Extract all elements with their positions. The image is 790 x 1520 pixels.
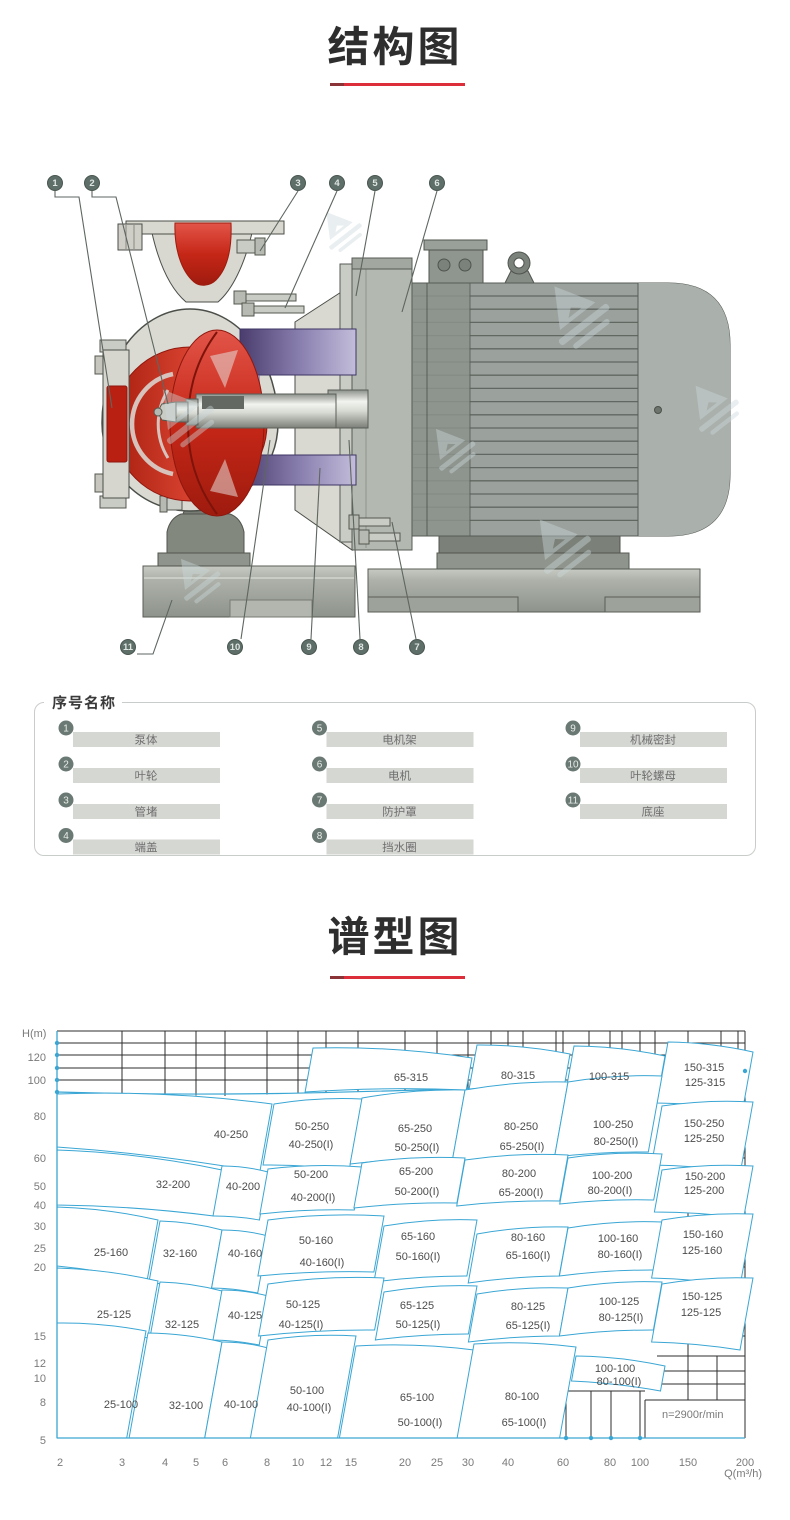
svg-text:50-250(I): 50-250(I) (395, 1142, 440, 1154)
svg-text:65-125: 65-125 (400, 1300, 434, 1312)
svg-text:80: 80 (604, 1457, 616, 1469)
svg-text:3: 3 (63, 795, 69, 806)
svg-text:40-125(I): 40-125(I) (279, 1319, 324, 1331)
svg-text:100-250: 100-250 (593, 1119, 633, 1131)
svg-text:100-160: 100-160 (598, 1233, 638, 1245)
svg-text:50: 50 (34, 1181, 46, 1193)
svg-text:9: 9 (570, 723, 576, 734)
svg-text:80: 80 (34, 1111, 46, 1123)
svg-text:12: 12 (320, 1457, 332, 1469)
svg-text:5: 5 (40, 1435, 46, 1447)
svg-text:25: 25 (431, 1457, 443, 1469)
svg-text:20: 20 (34, 1262, 46, 1274)
svg-text:150-315: 150-315 (684, 1062, 724, 1074)
svg-text:2: 2 (57, 1457, 63, 1469)
svg-text:40-250: 40-250 (214, 1129, 248, 1141)
svg-text:65-160: 65-160 (401, 1231, 435, 1243)
svg-text:50-100: 50-100 (290, 1385, 324, 1397)
svg-text:80-125(I): 80-125(I) (599, 1312, 644, 1324)
svg-text:65-200(I): 65-200(I) (499, 1187, 544, 1199)
svg-text:125-125: 125-125 (681, 1307, 721, 1319)
svg-text:30: 30 (462, 1457, 474, 1469)
svg-text:11: 11 (568, 795, 579, 806)
svg-text:7: 7 (317, 795, 323, 806)
svg-text:8: 8 (40, 1397, 46, 1409)
svg-text:65-250(I): 65-250(I) (500, 1141, 545, 1153)
svg-text:120: 120 (28, 1052, 46, 1064)
svg-text:10: 10 (34, 1373, 46, 1385)
svg-text:80-125: 80-125 (511, 1301, 545, 1313)
svg-text:5: 5 (317, 723, 323, 734)
svg-text:H(m): H(m) (22, 1028, 46, 1040)
svg-text:9: 9 (306, 642, 311, 653)
svg-text:4: 4 (334, 178, 340, 189)
svg-text:10: 10 (292, 1457, 304, 1469)
svg-text:65-200: 65-200 (399, 1166, 433, 1178)
svg-text:150: 150 (679, 1457, 697, 1469)
svg-text:50-250: 50-250 (295, 1121, 329, 1133)
svg-text:10: 10 (567, 759, 579, 770)
svg-text:1: 1 (63, 723, 69, 734)
svg-text:32-160: 32-160 (163, 1248, 197, 1260)
svg-text:60: 60 (34, 1153, 46, 1165)
svg-text:4: 4 (63, 831, 69, 842)
svg-text:150-125: 150-125 (682, 1291, 722, 1303)
svg-text:50-200: 50-200 (294, 1169, 328, 1181)
svg-text:40-160(I): 40-160(I) (300, 1257, 345, 1269)
svg-text:100-200: 100-200 (592, 1170, 632, 1182)
svg-text:80-100: 80-100 (505, 1391, 539, 1403)
svg-text:25-160: 25-160 (94, 1247, 128, 1259)
svg-text:65-100(I): 65-100(I) (502, 1417, 547, 1429)
svg-text:25-125: 25-125 (97, 1309, 131, 1321)
svg-text:125-250: 125-250 (684, 1133, 724, 1145)
svg-text:1: 1 (52, 178, 58, 189)
svg-text:80-250(I): 80-250(I) (594, 1136, 639, 1148)
svg-text:50-160: 50-160 (299, 1235, 333, 1247)
svg-text:80-200(I): 80-200(I) (588, 1185, 633, 1197)
svg-text:6: 6 (434, 178, 439, 189)
svg-text:40: 40 (34, 1200, 46, 1212)
svg-text:80-315: 80-315 (501, 1070, 535, 1082)
svg-text:25: 25 (34, 1243, 46, 1255)
svg-text:32-200: 32-200 (156, 1179, 190, 1191)
svg-text:4: 4 (162, 1457, 168, 1469)
svg-text:60: 60 (557, 1457, 569, 1469)
svg-text:125-160: 125-160 (682, 1245, 722, 1257)
svg-text:150-200: 150-200 (685, 1171, 725, 1183)
svg-text:40-160: 40-160 (228, 1248, 262, 1260)
svg-text:n=2900r/min: n=2900r/min (662, 1409, 723, 1421)
svg-text:30: 30 (34, 1221, 46, 1233)
svg-text:40: 40 (502, 1457, 514, 1469)
svg-text:65-125(I): 65-125(I) (506, 1320, 551, 1332)
svg-text:100-315: 100-315 (589, 1071, 629, 1083)
svg-text:40-100: 40-100 (224, 1399, 258, 1411)
svg-text:65-100: 65-100 (400, 1392, 434, 1404)
svg-text:3: 3 (295, 178, 300, 189)
svg-text:5: 5 (193, 1457, 199, 1469)
svg-text:6: 6 (222, 1457, 228, 1469)
svg-text:20: 20 (399, 1457, 411, 1469)
svg-text:125-315: 125-315 (685, 1077, 725, 1089)
svg-text:65-160(I): 65-160(I) (506, 1250, 551, 1262)
svg-text:40-100(I): 40-100(I) (287, 1402, 332, 1414)
svg-text:2: 2 (63, 759, 69, 770)
svg-text:80-100(I): 80-100(I) (597, 1376, 642, 1388)
svg-text:80-160(I): 80-160(I) (598, 1249, 643, 1261)
svg-text:7: 7 (414, 642, 419, 653)
svg-text:10: 10 (230, 642, 241, 653)
svg-text:125-200: 125-200 (684, 1185, 724, 1197)
svg-text:3: 3 (119, 1457, 125, 1469)
svg-text:50-125: 50-125 (286, 1299, 320, 1311)
svg-text:8: 8 (264, 1457, 270, 1469)
svg-text:11: 11 (123, 642, 134, 653)
svg-text:100-100: 100-100 (595, 1363, 635, 1375)
svg-text:150-250: 150-250 (684, 1118, 724, 1130)
svg-text:80-160: 80-160 (511, 1232, 545, 1244)
svg-text:40-250(I): 40-250(I) (289, 1139, 334, 1151)
svg-text:50-100(I): 50-100(I) (398, 1417, 443, 1429)
svg-text:2: 2 (89, 178, 94, 189)
svg-text:8: 8 (317, 831, 323, 842)
svg-text:80-250: 80-250 (504, 1121, 538, 1133)
svg-text:15: 15 (34, 1331, 46, 1343)
svg-text:15: 15 (345, 1457, 357, 1469)
svg-text:50-160(I): 50-160(I) (396, 1251, 441, 1263)
svg-text:100-125: 100-125 (599, 1296, 639, 1308)
svg-text:150-160: 150-160 (683, 1229, 723, 1241)
svg-text:40-125: 40-125 (228, 1310, 262, 1322)
svg-text:32-125: 32-125 (165, 1319, 199, 1331)
svg-text:40-200(I): 40-200(I) (291, 1192, 336, 1204)
svg-text:12: 12 (34, 1358, 46, 1370)
svg-text:50-200(I): 50-200(I) (395, 1186, 440, 1198)
svg-text:65-315: 65-315 (394, 1072, 428, 1084)
svg-text:40-200: 40-200 (226, 1181, 260, 1193)
svg-text:50-125(I): 50-125(I) (396, 1319, 441, 1331)
svg-text:6: 6 (317, 759, 323, 770)
svg-text:100: 100 (631, 1457, 649, 1469)
svg-text:Q(m³/h): Q(m³/h) (724, 1468, 762, 1480)
svg-text:80-200: 80-200 (502, 1168, 536, 1180)
svg-text:8: 8 (358, 642, 363, 653)
svg-text:5: 5 (372, 178, 378, 189)
svg-text:25-100: 25-100 (104, 1399, 138, 1411)
svg-text:65-250: 65-250 (398, 1123, 432, 1135)
svg-text:100: 100 (28, 1075, 46, 1087)
svg-text:32-100: 32-100 (169, 1400, 203, 1412)
